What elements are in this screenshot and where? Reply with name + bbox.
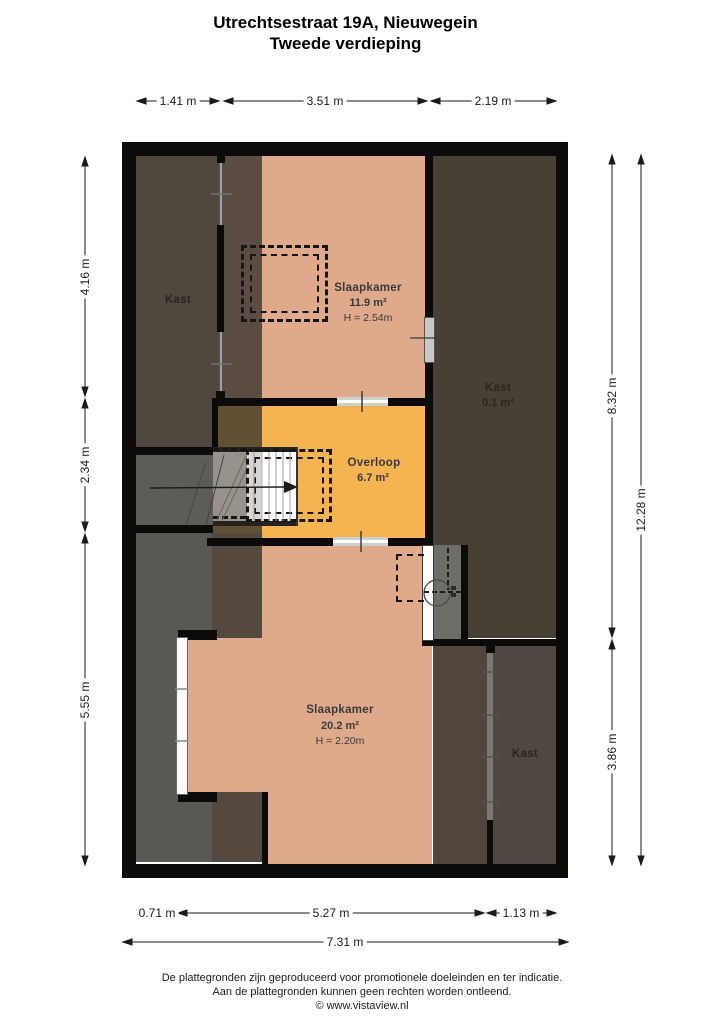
dormer-dash-rail-a — [213, 448, 246, 454]
title-floor: Tweede verdieping — [123, 33, 568, 54]
window-left — [176, 637, 188, 795]
dim-top-2: 3.51 m — [304, 94, 347, 108]
room-label-overloop: Overloop — [348, 457, 401, 469]
page-title: Utrechtsestraat 19A, Nieuwegein Tweede v… — [123, 12, 568, 54]
dim-right-outer: 12.28 m — [634, 485, 648, 534]
low-roof-brown-right — [433, 646, 487, 864]
roof-space-left-mid — [136, 455, 213, 525]
threshold-overloop-bottom-b — [333, 543, 388, 546]
room-height-slaapkamer-top: H = 2.54m — [344, 312, 393, 324]
threshold-overloop-bottom-a — [333, 537, 388, 540]
threshold-overloop-top-a — [337, 397, 388, 400]
wall-kast-left-bottom — [136, 447, 218, 455]
disclaimer: De plattegronden zijn geproduceerd voor … — [30, 971, 694, 1013]
partition-cap-bottom — [216, 391, 225, 398]
dim-left-3: 5.55 m — [78, 679, 92, 722]
dim-bottom-1: 0.71 m — [136, 906, 179, 920]
dim-bottom-2: 5.27 m — [310, 906, 353, 920]
wall-overloop-top-left — [212, 398, 337, 406]
wall-left-mid — [136, 525, 213, 533]
floorplan-page: Utrechtsestraat 19A, Nieuwegein Tweede v… — [0, 0, 724, 1024]
partition-segment-mid — [217, 225, 224, 332]
room-area-slaapkamer-bottom: 20.2 m² — [321, 720, 359, 732]
dormer-outline-top-inner — [250, 254, 319, 313]
dim-bottom-total: 7.31 m — [324, 935, 367, 949]
nook-wall-right — [461, 545, 468, 646]
dim-right-inner-1: 8.32 m — [605, 375, 619, 418]
room-area-kast-top-right: 0.1 m² — [482, 397, 514, 409]
partition-cap-top — [217, 156, 225, 163]
dim-left-1: 4.16 m — [78, 256, 92, 299]
kast-partition-line — [487, 653, 493, 820]
disclaimer-copyright: © www.vistaview.nl — [30, 999, 694, 1013]
room-slaapkamer-bottom-lower — [268, 792, 432, 864]
wall-nook-bottom — [422, 639, 568, 646]
wall-overloop-bottom-left — [207, 538, 333, 546]
room-label-slaapkamer-bottom: Slaapkamer — [306, 704, 374, 716]
dim-left-2: 2.34 m — [78, 444, 92, 487]
low-roof-brown-upper — [212, 533, 262, 640]
wall-stairwell-left-stub — [212, 398, 218, 447]
room-height-slaapkamer-bottom: H = 2.20m — [316, 735, 365, 747]
room-area-overloop: 6.7 m² — [357, 472, 389, 484]
dim-top-1: 1.41 m — [157, 94, 200, 108]
dormer-outline-overloop-inner — [254, 457, 324, 514]
door-slaapkamer-kast — [424, 317, 435, 363]
room-label-kast-bottom-right: Kast — [512, 748, 538, 760]
nook-floor — [434, 545, 461, 639]
kast-partition-stub-top — [486, 639, 495, 653]
dim-right-inner-2: 3.86 m — [605, 731, 619, 774]
dim-bottom-3: 1.13 m — [500, 906, 543, 920]
threshold-overloop-top-b — [337, 403, 388, 406]
disclaimer-line-1: De plattegronden zijn geproduceerd voor … — [30, 971, 694, 985]
stair-winder-area — [213, 452, 247, 521]
dormer-dash-rail-b — [213, 516, 246, 522]
dim-top-3: 2.19 m — [472, 94, 515, 108]
room-label-kast-top-left: Kast — [165, 294, 191, 306]
kast-partition-stub-bottom — [487, 820, 493, 864]
room-label-slaapkamer-top: Slaapkamer — [334, 282, 402, 294]
title-address: Utrechtsestraat 19A, Nieuwegein — [123, 12, 568, 33]
roofline-dashed-nook — [396, 554, 424, 602]
disclaimer-line-2: Aan de plattegronden kunnen geen rechten… — [30, 985, 694, 999]
room-area-slaapkamer-top: 11.9 m² — [349, 297, 386, 309]
low-roof-brown-lower — [212, 792, 262, 862]
wall-slaapkamer-bottom-left-edge — [262, 792, 268, 864]
room-label-kast-top-right: Kast — [485, 382, 511, 394]
